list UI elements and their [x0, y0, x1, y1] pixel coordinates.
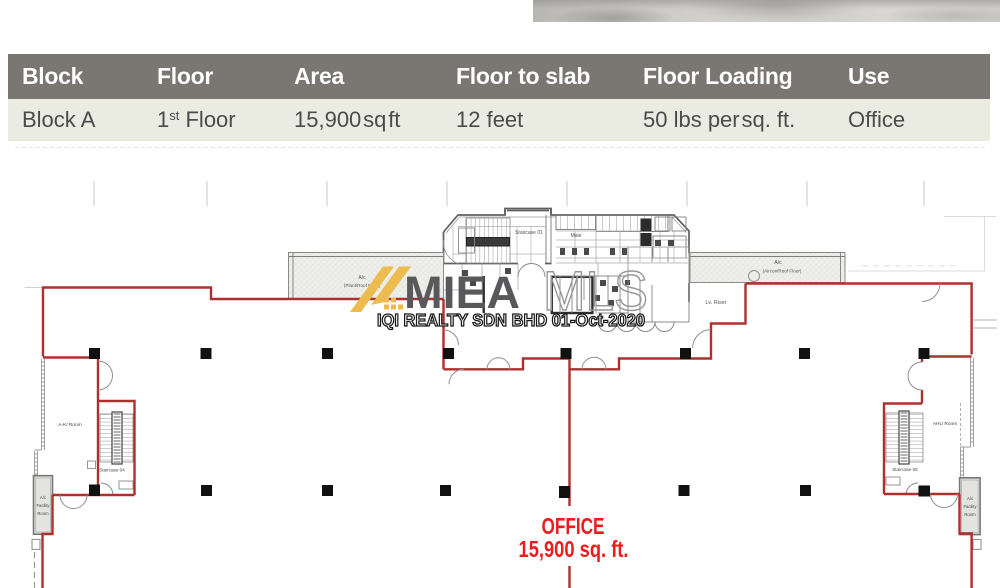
svg-text:IQI REALTY SDN BHD 01-Oct-2020: IQI REALTY SDN BHD 01-Oct-2020 [377, 310, 645, 330]
svg-text:A/c: A/c [967, 496, 974, 501]
svg-text:(Aircon/Roof Floor): (Aircon/Roof Floor) [763, 269, 802, 274]
svg-text:Lv. Riser: Lv. Riser [705, 300, 726, 306]
svg-text:15,900 sq. ft.: 15,900 sq. ft. [519, 536, 629, 562]
svg-text:Facility: Facility [963, 504, 977, 509]
svg-text:Staircase 01: Staircase 01 [515, 230, 543, 236]
svg-text:Facility: Facility [36, 503, 50, 508]
svg-text:Staircase 04: Staircase 04 [99, 468, 125, 473]
svg-text:Male: Male [571, 233, 582, 239]
svg-text:Staircase 05: Staircase 05 [892, 467, 918, 472]
svg-text:A-K/ Room: A-K/ Room [58, 422, 81, 428]
svg-text:A/c: A/c [40, 495, 47, 500]
svg-text:AHU Room: AHU Room [933, 421, 957, 427]
svg-text:Room: Room [964, 512, 976, 517]
svg-text:A/c: A/c [774, 260, 782, 266]
svg-text:A/c: A/c [358, 275, 366, 281]
svg-text:Room: Room [37, 511, 49, 516]
